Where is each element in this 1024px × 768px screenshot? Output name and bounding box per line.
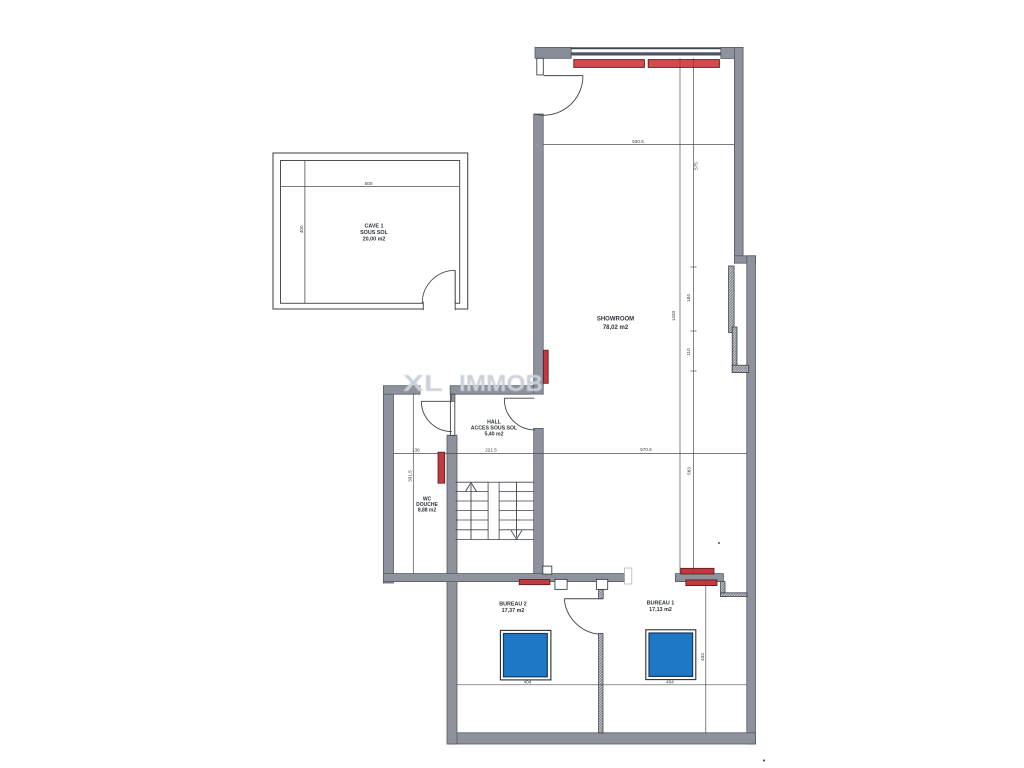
svg-text:500: 500 xyxy=(365,181,373,186)
svg-text:221.5: 221.5 xyxy=(485,447,497,452)
svg-text:BUREAU 2: BUREAU 2 xyxy=(499,602,527,608)
svg-text:433: 433 xyxy=(700,653,705,661)
svg-text:SOUS SOL: SOUS SOL xyxy=(360,230,389,236)
svg-text:IMMOB: IMMOB xyxy=(459,370,543,396)
svg-text:184: 184 xyxy=(686,294,691,302)
svg-text:XL: XL xyxy=(403,370,443,396)
svg-text:331.5: 331.5 xyxy=(407,470,412,482)
svg-text:17,13 m2: 17,13 m2 xyxy=(649,607,672,613)
svg-text:SHOWROOM: SHOWROOM xyxy=(597,317,634,323)
svg-text:HALL: HALL xyxy=(487,419,502,425)
svg-text:530.5: 530.5 xyxy=(632,139,644,144)
svg-text:570.5: 570.5 xyxy=(640,447,652,452)
svg-text:CAVE 1: CAVE 1 xyxy=(364,224,383,230)
svg-text:17,37 m2: 17,37 m2 xyxy=(502,608,525,614)
svg-text:78,02 m2: 78,02 m2 xyxy=(603,325,629,331)
svg-text:8,88 m2: 8,88 m2 xyxy=(418,507,437,513)
svg-text:BUREAU 1: BUREAU 1 xyxy=(647,601,675,607)
svg-text:563: 563 xyxy=(687,467,692,475)
svg-text:400: 400 xyxy=(299,225,304,233)
svg-text:5,40 m2: 5,40 m2 xyxy=(484,432,503,438)
svg-text:ACCES SOUS SOL: ACCES SOUS SOL xyxy=(471,426,518,432)
svg-text:110: 110 xyxy=(686,348,691,356)
svg-text:1433: 1433 xyxy=(671,310,676,321)
svg-text:404: 404 xyxy=(666,680,674,685)
svg-text:20,00 m2: 20,00 m2 xyxy=(363,236,386,242)
svg-text:575: 575 xyxy=(694,162,699,170)
